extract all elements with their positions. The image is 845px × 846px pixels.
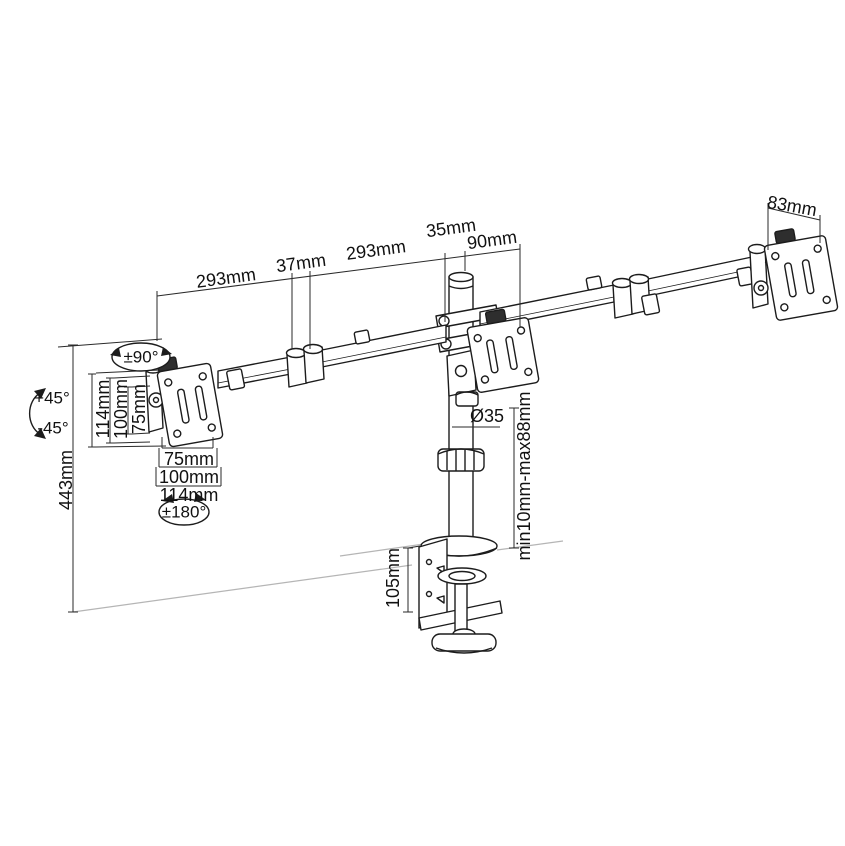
rotation-tilt-up-label: +45° <box>34 390 70 407</box>
cable-clip <box>641 294 659 316</box>
dim-vesa-h-114: 114mm <box>160 486 219 504</box>
cable-clip <box>586 276 602 290</box>
dim-vesa-v-75: 75mm <box>130 384 148 434</box>
dim-vesa-h-100: 100mm <box>159 468 219 486</box>
desk-clamp <box>419 536 502 653</box>
dim-height: 443mm <box>57 450 75 510</box>
cable-clip <box>226 369 244 391</box>
dim-clamp-height: 105mm <box>384 548 402 608</box>
height-adjust-collar <box>438 449 484 471</box>
clamp-knob <box>432 634 496 651</box>
dim-vesa-v-100: 100mm <box>112 379 130 439</box>
monitor-arm-technical-diagram: 293mm 37mm 293mm 35mm 90mm 83mm 443mm 11… <box>0 0 845 846</box>
vesa-plate-right <box>762 223 838 320</box>
left-elbow-joint <box>287 345 325 388</box>
dim-pole-diameter: Ø35 <box>470 407 504 425</box>
dim-vesa-h-75: 75mm <box>164 450 214 468</box>
pole-cap <box>449 273 473 282</box>
left-arm <box>218 325 446 390</box>
dim-desk-thickness-range: min10mm-max88mm <box>515 391 533 560</box>
dim-vesa-v-114: 114mm <box>94 380 112 439</box>
rotation-swivel-label: ±90° <box>123 349 158 366</box>
rotation-rotate-label: ±180° <box>162 504 207 521</box>
rotation-tilt-down-label: -45° <box>37 420 68 437</box>
cable-clip <box>354 330 370 344</box>
